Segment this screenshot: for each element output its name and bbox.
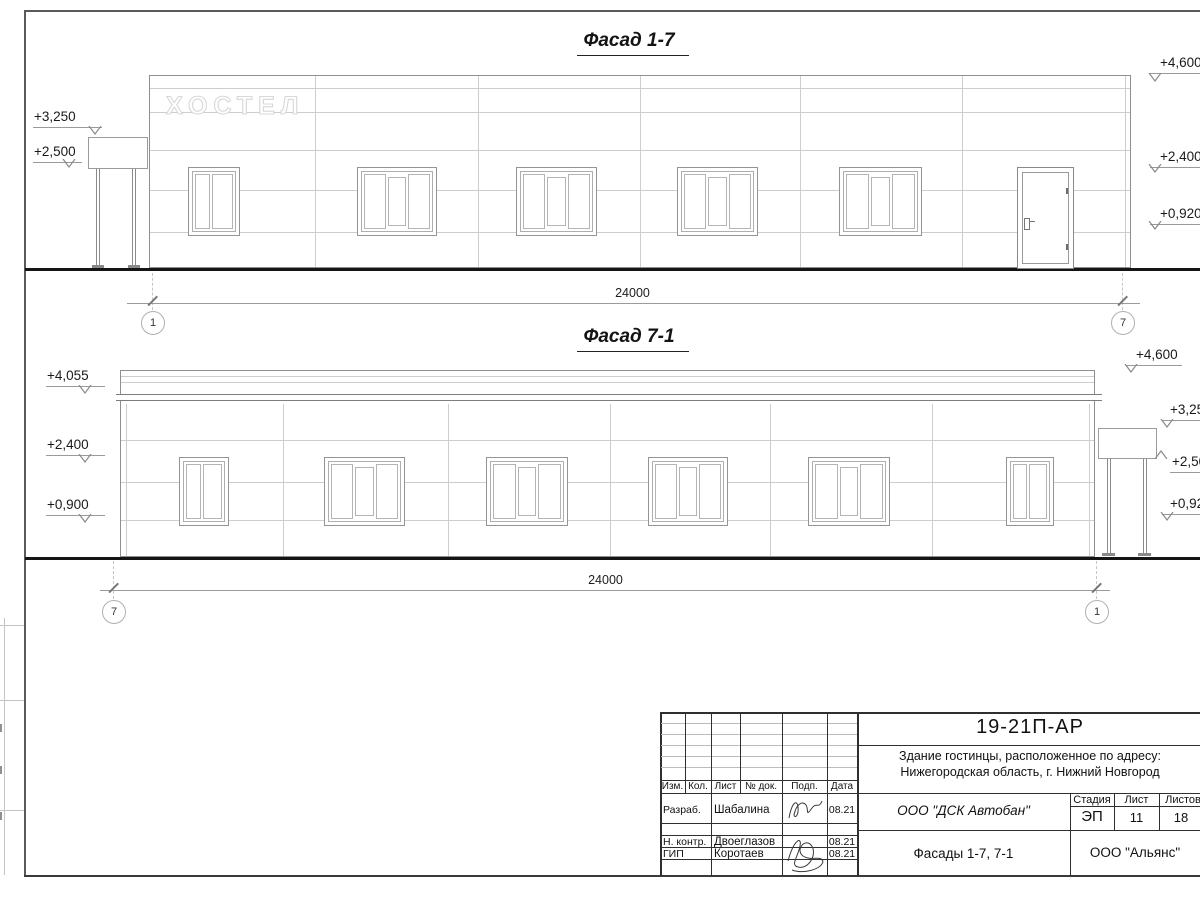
window-pane [493,464,516,519]
elevation-mark: +2,400 [46,438,105,456]
panel-joint [770,404,771,556]
titleblock-grid-line [711,712,712,876]
window-pane [840,467,859,516]
parapet-line [121,382,1094,383]
contractor-name: ООО "Альянс" [1070,845,1200,860]
project-address-line2: Нижегородская область, г. Нижний Новгоро… [857,765,1200,779]
elevation-arrow-icon [62,159,76,168]
window [808,457,890,526]
dimension-line [127,303,1140,304]
window-frame [192,171,236,232]
elevation-mark: +4,600 [1150,56,1200,74]
date-razrab: 08.21 [827,804,857,816]
elevation-mark: +4,055 [46,369,105,387]
document-number: 19-21П-АР [857,716,1200,739]
extension-line [1122,273,1123,310]
window-pane [684,174,706,229]
window-pane [815,464,838,519]
col-kol: Кол. [685,781,711,792]
canopy-post [1146,459,1147,553]
col-date: Дата [827,781,857,792]
canopy-post-base [1102,553,1115,556]
panel-line [121,482,1094,483]
margin-strip-divider [0,700,24,701]
signature-scribble [783,833,827,875]
extension-line [1096,561,1097,599]
elevation-arrow-icon [78,385,92,394]
facade-1-7-title: Фасад 1-7 [553,30,713,56]
window-pane [364,174,386,229]
dimension-value: 24000 [533,573,678,587]
date-nkontr: 08.21 [827,836,857,848]
window-pane [860,464,883,519]
elevation-arrow-icon [1148,164,1162,173]
sheets-label: Листов [1159,794,1200,806]
sheet-label: Лист [1114,794,1159,806]
window-pane [355,467,374,516]
frame-bottom [24,875,1200,877]
window-pane [729,174,751,229]
window-pane [376,464,398,519]
hostel-sign: ХОСТЕЛ [166,92,304,121]
window-pane [699,464,721,519]
window-pane [538,464,561,519]
elevation-arrow-icon [1148,221,1162,230]
window-pane [892,174,915,229]
panel-joint [962,76,963,267]
titleblock-grid-line [1070,806,1200,807]
elevation-arrow-icon [78,514,92,523]
window-frame [328,461,401,522]
window-pane [655,464,677,519]
frame-left [24,10,26,877]
drawing-sheet: Фасад 1-7 ХОСТЕЛ +3,250 [0,0,1200,900]
role-nkontr: Н. контр. [663,836,706,848]
axis-circle-1: 1 [141,311,165,335]
sheet-content-title: Фасады 1-7, 7-1 [857,846,1070,861]
axis-circle-7: 7 [102,600,126,624]
window-pane [518,467,537,516]
name-razrab: Шабалина [714,804,770,816]
window [486,457,568,526]
panel-joint [478,76,479,267]
dimension-value: 24000 [560,286,705,300]
elevation-arrow-icon [1160,419,1174,428]
door-hinge [1066,188,1068,194]
parapet-band [116,394,1102,401]
frame-top [24,10,1200,12]
canopy-post [135,169,136,266]
window-pane [568,174,590,229]
canopy-post [1107,459,1108,553]
canopy-post [99,169,100,266]
window-pane [388,177,406,226]
window-pane [679,467,697,516]
margin-strip-divider [0,625,24,626]
stage-label: Стадия [1070,794,1114,806]
window [357,167,437,236]
window [648,457,728,526]
canopy-post [96,169,97,266]
margin-stamp-mark [0,766,2,774]
panel-joint [932,404,933,556]
titleblock-border [660,712,1200,714]
window-frame [812,461,886,522]
role-razrab: Разраб. [663,804,701,816]
window-frame [681,171,754,232]
elevation-arrow-up-icon [1154,450,1168,459]
canopy [88,137,148,169]
margin-stamp-mark [0,812,2,820]
canopy [1098,428,1157,459]
door-handle [1024,218,1030,230]
window-pane [1029,464,1047,519]
window-pane [203,464,222,519]
entrance-door [1017,167,1074,269]
panel-joint [640,76,641,267]
panel-joint [1089,404,1090,556]
canopy-post [1110,459,1111,553]
window-frame [183,461,225,522]
margin-strip-divider [0,810,24,811]
door-hinge [1066,244,1068,250]
facade-7-1-title-text: Фасад 7-1 [577,326,688,352]
window [1006,457,1054,526]
window-pane [195,174,210,229]
elevation-mark: +0,900 [46,498,105,516]
elevation-arrow-icon [88,126,102,135]
panel-joint [283,404,284,556]
canopy-post-base [1138,553,1151,556]
axis-circle-1: 1 [1085,600,1109,624]
panel-joint [610,404,611,556]
window [839,167,922,236]
margin-strip-line [4,618,5,875]
role-gip: ГИП [663,848,684,860]
window-pane [846,174,869,229]
window-pane [523,174,545,229]
window [179,457,229,526]
project-address-line1: Здание гостинцы, расположенное по адресу… [857,749,1200,763]
window-frame [490,461,564,522]
window-pane [331,464,353,519]
parapet-line [121,376,1094,377]
panel-joint [800,76,801,267]
panel-joint [315,76,316,267]
window-frame [1010,461,1050,522]
dimension-line [100,590,1110,591]
date-gip: 08.21 [827,848,857,860]
col-list: Лист [711,781,740,792]
facade-7-1-title: Фасад 7-1 [553,326,713,352]
facade-1-7-title-text: Фасад 1-7 [577,30,688,56]
elevation-arrow-icon [1148,73,1162,82]
panel-line [121,520,1094,521]
window-pane [1013,464,1027,519]
window-pane [212,174,233,229]
axis-circle-7: 7 [1111,311,1135,335]
window [324,457,405,526]
window [516,167,597,236]
extension-line [152,273,153,310]
canopy-post [132,169,133,266]
window-pane [708,177,727,226]
col-podp: Подп. [782,781,827,792]
ground-line [25,557,1200,560]
extension-line [113,561,114,599]
sheets-value: 18 [1159,810,1200,825]
name-nkontr: Двоеглазов [714,836,775,848]
col-izm: Изм. [660,781,685,792]
elevation-arrow-icon [78,454,92,463]
signature-scribble [786,796,824,822]
elevation-arrow-icon [1160,512,1174,521]
stage-value: ЭП [1070,808,1114,825]
panel-joint [448,404,449,556]
window-pane [871,177,890,226]
elevation-mark: +2,500 [1170,455,1200,473]
window [188,167,240,236]
panel-joint [1125,76,1126,267]
col-ndoc: № док. [740,781,782,792]
window-frame [843,171,918,232]
window-frame [652,461,724,522]
company-name: ООО "ДСК Автобан" [857,803,1070,818]
canopy-post [1143,459,1144,553]
titleblock-grid-line [857,830,1200,831]
window-pane [408,174,430,229]
margin-stamp-mark [0,724,2,732]
window-frame [520,171,593,232]
titleblock-border [660,712,662,876]
window-pane [186,464,201,519]
window-frame [361,171,433,232]
window-pane [547,177,566,226]
name-gip: Коротаев [714,848,764,860]
panel-joint [126,404,127,556]
titleblock-grid-line [857,745,1200,746]
elevation-arrow-icon [1124,364,1138,373]
panel-line [121,440,1094,441]
sheet-value: 11 [1114,810,1159,825]
window [677,167,758,236]
door-handle [1029,221,1035,222]
